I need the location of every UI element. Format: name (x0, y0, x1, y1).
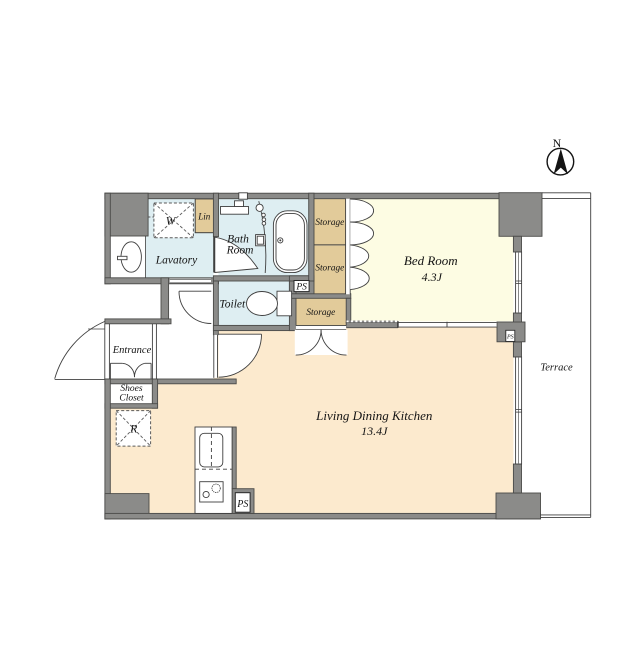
svg-text:Shoes: Shoes (120, 384, 142, 394)
svg-text:R: R (129, 424, 137, 436)
svg-text:Storage: Storage (315, 264, 344, 274)
svg-text:Lavatory: Lavatory (155, 255, 198, 267)
svg-text:Bed Room: Bed Room (404, 253, 458, 268)
svg-text:Toilet: Toilet (219, 299, 246, 311)
svg-text:PS: PS (506, 335, 514, 341)
svg-text:Storage: Storage (306, 308, 335, 318)
svg-text:PS: PS (295, 283, 307, 293)
svg-text:4.3J: 4.3J (422, 270, 443, 284)
svg-text:Room: Room (226, 244, 254, 256)
svg-text:W: W (166, 216, 177, 228)
svg-text:N: N (553, 136, 562, 150)
svg-text:Closet: Closet (119, 394, 144, 404)
svg-text:Terrace: Terrace (540, 363, 573, 374)
svg-text:Storage: Storage (315, 218, 344, 228)
svg-text:Lin: Lin (197, 212, 211, 222)
svg-text:13.4J: 13.4J (361, 424, 388, 438)
svg-text:PS: PS (236, 499, 248, 510)
svg-text:Entrance: Entrance (112, 345, 152, 356)
svg-text:Living Dining Kitchen: Living Dining Kitchen (315, 408, 432, 423)
